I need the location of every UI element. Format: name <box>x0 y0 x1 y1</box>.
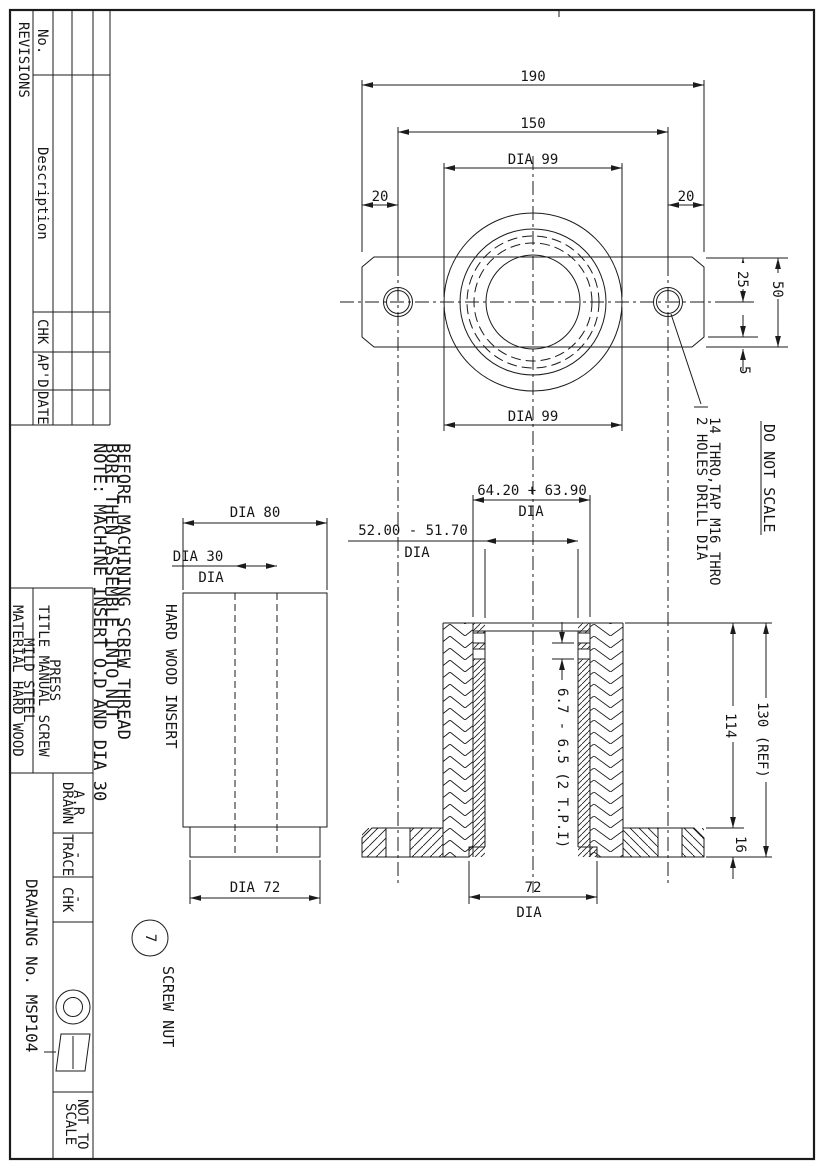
general-notes: NOTE: MACHINE INSERT O.D AND DIA 30 BORE… <box>89 443 133 801</box>
dim-72-suffix: DIA <box>516 905 542 921</box>
dim-pitch: 6.7 - 6.5 (2 T.P.I) <box>554 688 570 848</box>
dim-20-left: 20 <box>372 189 389 205</box>
drawing-number: DRAWING No. MSP104 <box>22 879 41 1052</box>
balloon-number: 7 <box>142 934 158 942</box>
insert-label: HARD WOOD INSERT <box>162 604 180 749</box>
dim-dia99-top: DIA 99 <box>508 152 559 168</box>
rev-col-description: Description <box>34 147 50 240</box>
insert-view-dimensions: DIA 80 DIA 30 DIA DIA 72 <box>172 505 327 904</box>
dim-16: 16 <box>732 836 748 853</box>
dim-bore: 52.00 - 51.70 <box>358 523 468 539</box>
rev-col-no: No. <box>34 29 50 54</box>
dim-72: 72 <box>525 880 542 896</box>
dim-thread-major: 64.20 + 63.90 <box>477 483 587 499</box>
dim-25: 25 <box>734 271 750 288</box>
dim-130-ref: 130 (REF) <box>754 702 770 778</box>
dim-dia30-suffix: DIA <box>198 570 224 586</box>
dim-bore-suffix: DIA <box>404 545 430 561</box>
note-line-3: BEFORE MACHINING SCREW THREAD <box>113 443 133 740</box>
dim-150: 150 <box>520 116 545 132</box>
part-callout: 7 SCREW NUT <box>132 920 177 1047</box>
dim-20-right: 20 <box>678 189 695 205</box>
material-line-2: MILD STEEL <box>20 638 36 722</box>
part-name: SCREW NUT <box>159 966 177 1047</box>
dim-dia99-bottom: DIA 99 <box>508 409 559 425</box>
rev-col-date: DATE <box>34 391 50 425</box>
plan-view-dimensions: 190 150 DIA 99 20 20 DIA 99 25 50 5 2 HO… <box>362 69 788 586</box>
revisions-title: REVISIONS <box>15 22 31 98</box>
dim-5: 5 <box>736 366 752 374</box>
trace-value: - <box>70 851 86 859</box>
engineering-drawing: REVISIONS No. Description CHK AP'D DATE … <box>0 0 826 1169</box>
title-block: MATERIAL HARD WOOD MILD STEEL TITLE MANU… <box>9 588 93 1159</box>
do-not-scale-text: DO NOT SCALE <box>760 424 778 532</box>
rev-col-apd: AP'D <box>34 354 50 388</box>
dim-190: 190 <box>520 69 545 85</box>
drawing-sheet: REVISIONS No. Description CHK AP'D DATE … <box>0 0 826 1169</box>
dim-dia30: DIA 30 <box>173 549 224 565</box>
insert-view: HARD WOOD INSERT <box>162 593 327 857</box>
dim-114: 114 <box>722 713 738 738</box>
rev-col-chk: CHK <box>34 319 50 345</box>
do-not-scale-note: DO NOT SCALE <box>760 421 778 535</box>
chk-value: - <box>70 895 86 903</box>
dim-dia80: DIA 80 <box>230 505 281 521</box>
title-line-2: PRESS <box>46 659 62 701</box>
drawn-value: A.R <box>70 790 86 816</box>
dim-50: 50 <box>769 281 785 298</box>
dim-dia72-insert: DIA 72 <box>230 880 281 896</box>
scale-line-2: SCALE <box>62 1103 78 1145</box>
projection-symbol-icon <box>44 990 90 1071</box>
dim-thread-major-suffix: DIA <box>518 504 544 520</box>
revisions-table: REVISIONS No. Description CHK AP'D DATE <box>10 10 110 425</box>
holes-note-line-2: 14 THRO,TAP M16 THRO <box>706 417 722 586</box>
